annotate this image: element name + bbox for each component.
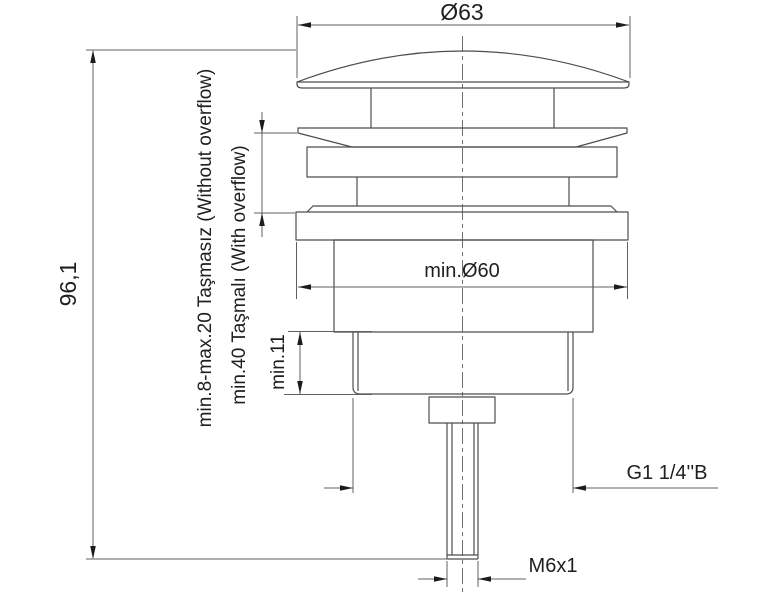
arrowhead-left xyxy=(298,284,311,290)
dimension-stud-thread: M6x1 xyxy=(418,555,577,587)
arrowhead-up xyxy=(297,332,303,345)
arrowhead-right xyxy=(616,22,629,28)
arrowhead-right xyxy=(434,576,447,582)
dim-label-thread-spec: G1 1/4''B xyxy=(626,462,707,484)
body-main xyxy=(334,240,593,332)
dimension-thread-spec: G1 1/4''B xyxy=(324,398,718,493)
arrowhead-down xyxy=(259,120,265,133)
annotation-with-overflow: min.40 Taşmalı (With overflow) xyxy=(229,145,250,404)
arrowhead-up xyxy=(90,50,96,63)
dim-label-thread-length: min.11 xyxy=(268,334,289,390)
arrowhead-right xyxy=(340,485,353,491)
dim-label-top-diameter: Ø63 xyxy=(440,0,483,25)
drawing-canvas: Ø63 96,1 min.8-max.20 Taşmasız (Without … xyxy=(0,0,784,600)
dimension-overall-height: 96,1 xyxy=(55,50,448,559)
dim-label-stud-thread: M6x1 xyxy=(529,555,578,577)
arrowhead-up xyxy=(259,213,265,226)
arrowhead-left xyxy=(478,576,491,582)
arrowhead-right xyxy=(614,284,627,290)
dim-label-overall-height: 96,1 xyxy=(55,262,81,307)
technical-drawing: Ø63 96,1 min.8-max.20 Taşmasız (Without … xyxy=(0,0,784,600)
arrowhead-left xyxy=(298,22,311,28)
dimension-thread-length: min.11 xyxy=(268,332,372,395)
dim-label-min-hole: min.Ø60 xyxy=(424,260,500,282)
arrowhead-down xyxy=(90,546,96,559)
annotation-without-overflow: min.8-max.20 Taşmasız (Without overflow) xyxy=(195,69,216,428)
arrowhead-down xyxy=(297,381,303,394)
arrowhead-left xyxy=(573,485,586,491)
